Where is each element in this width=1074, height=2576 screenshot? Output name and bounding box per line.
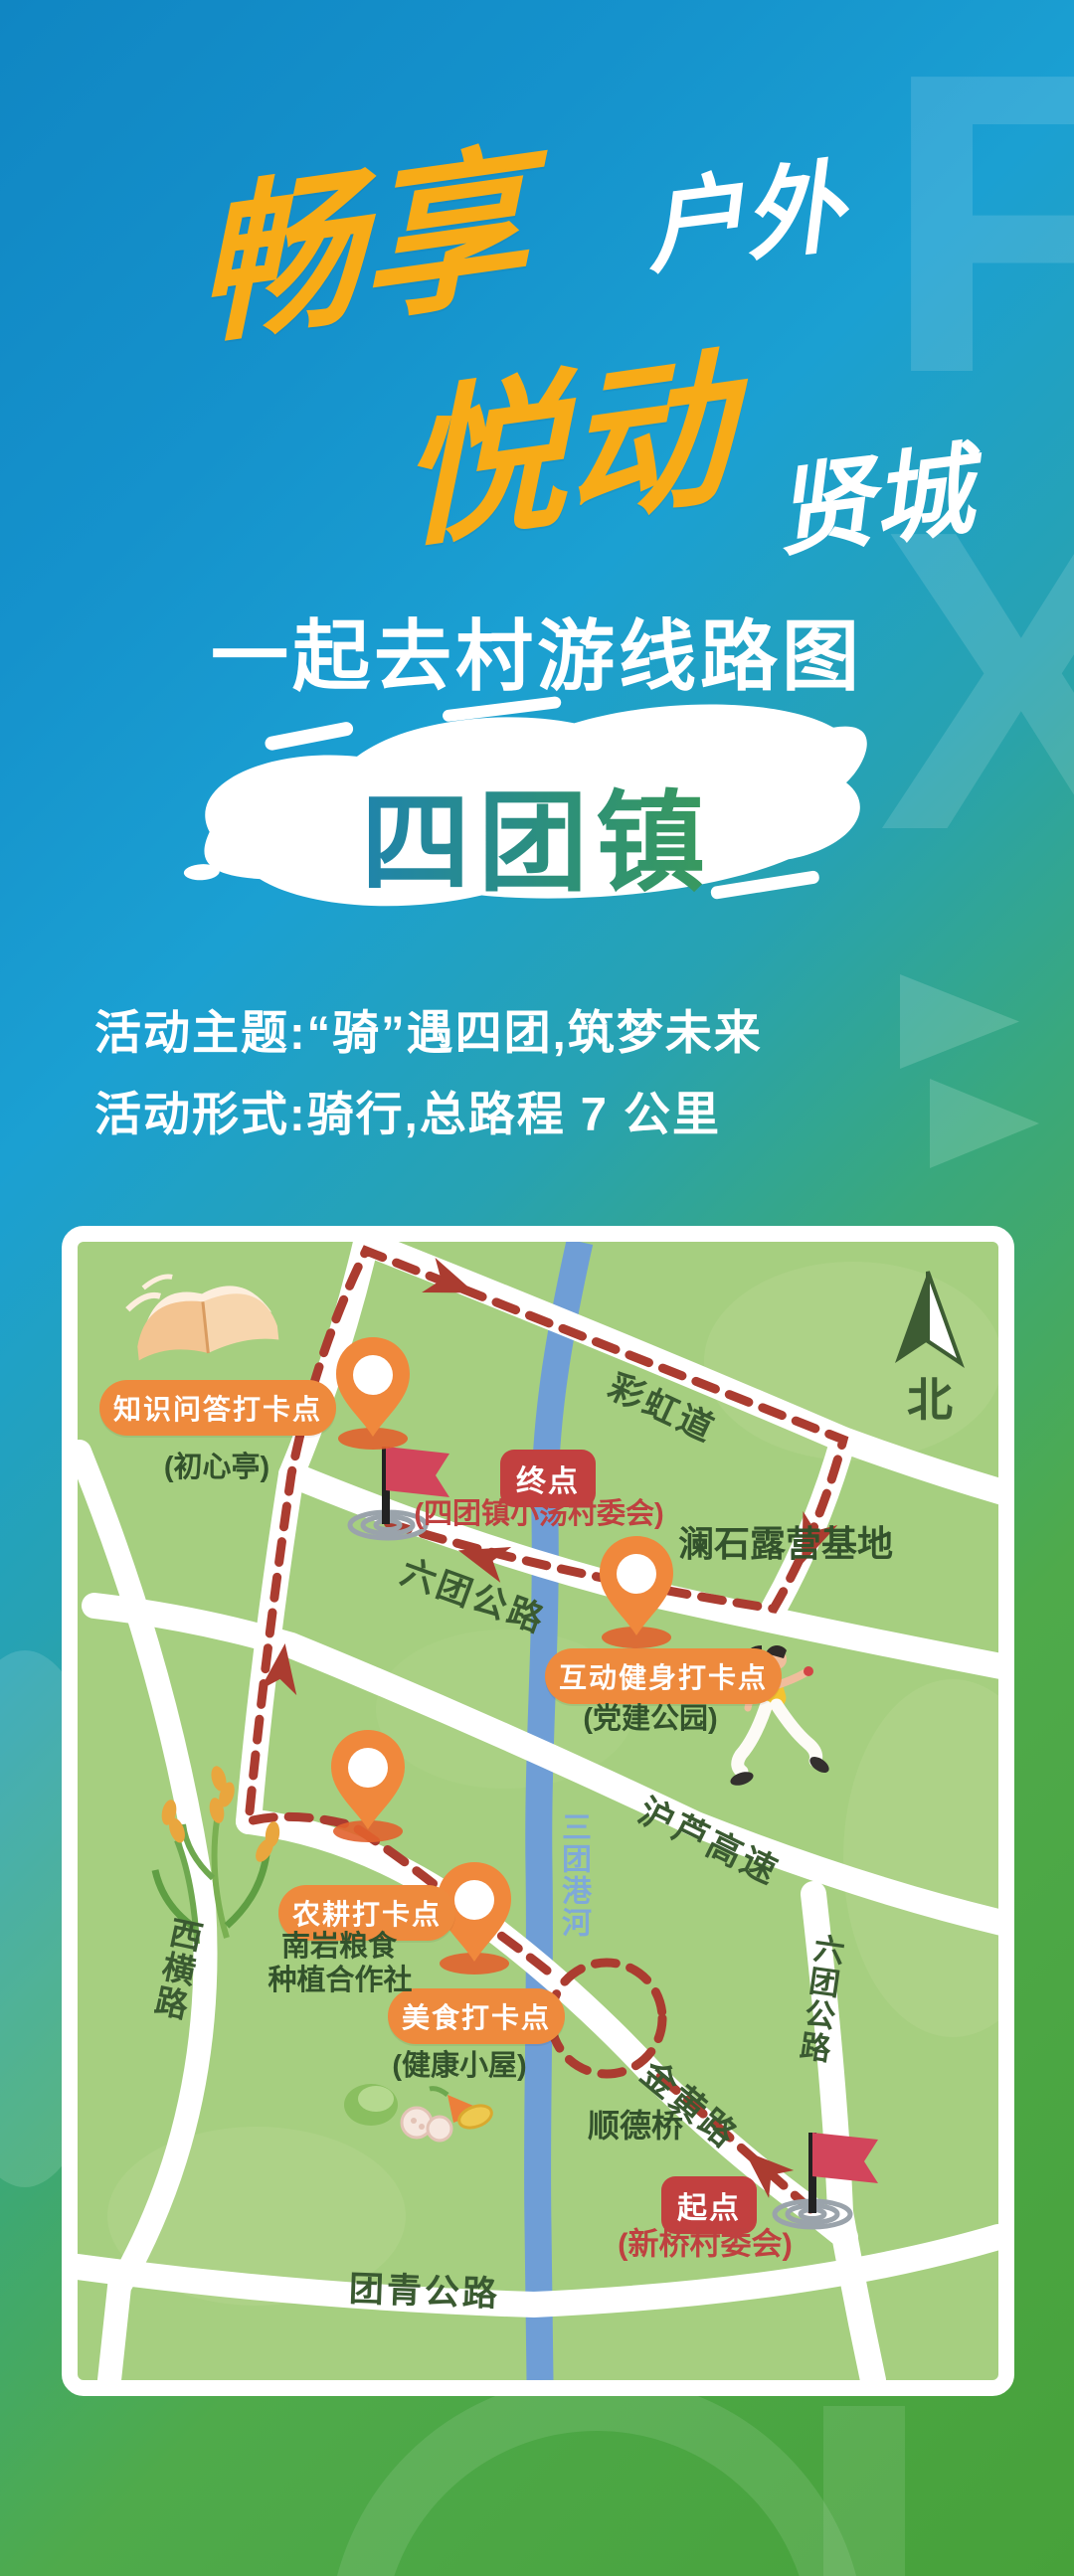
chevron-decoration (900, 974, 1019, 1069)
label-farming-sub2: 种植合作社 (268, 1957, 412, 1998)
pin-fitness-icon (600, 1536, 673, 1648)
badge-knowledge-checkpoint: 知识问答打卡点 (99, 1380, 336, 1436)
label-endpoint-sub: (四团镇小荡村委会) (414, 1490, 663, 1532)
slogan-script-2: 悦动 (397, 344, 734, 559)
north-label: 北 (907, 1364, 953, 1430)
poster-root: F X 畅享 户外 悦动 贤城 一起去村游线路图 四团镇 活动主题:“骑”遇四团… (0, 0, 1074, 2576)
label-road-tuanqing: 团青公路 (348, 2261, 501, 2317)
label-camp-base: 澜石露营基地 (678, 1515, 893, 1567)
route-map: 北 知识问答打卡点 互动健身打卡点 农耕打卡点 美食打卡点 终点 起点 (初心亭… (62, 1226, 1014, 2396)
label-river: 三团港河 (551, 1811, 595, 1939)
slogan-script-1: 畅享 (193, 140, 530, 355)
book-icon (124, 1266, 279, 1361)
town-badge: 四团镇 (159, 754, 915, 913)
watermark-letter-f: F (882, 10, 1074, 437)
page-title: 一起去村游线路图 (0, 595, 1074, 706)
slogan-plain-1: 户外 (639, 157, 849, 280)
label-knowledge-sub: (初心亭) (164, 1444, 269, 1485)
label-startpoint-sub: (新桥村委会) (618, 2219, 793, 2264)
flag-icon (812, 2133, 878, 2183)
pin-knowledge-icon (336, 1337, 410, 1450)
vegetables-icon (344, 2084, 494, 2141)
label-fitness-sub: (党建公园) (583, 1695, 717, 1737)
chevron-decoration (930, 1079, 1039, 1168)
label-food-sub: (健康小屋) (392, 2042, 526, 2084)
badge-food-checkpoint: 美食打卡点 (388, 1988, 565, 2044)
ring-decoration (328, 2376, 865, 2576)
activity-format: 活动形式:骑行,总路程 7 公里 (94, 1076, 721, 1144)
bar-decoration (823, 2406, 905, 2576)
activity-theme: 活动主题:“骑”遇四团,筑梦未来 (94, 994, 763, 1063)
slogan-plain-2: 贤城 (769, 440, 979, 564)
pin-farming-icon (331, 1730, 405, 1842)
